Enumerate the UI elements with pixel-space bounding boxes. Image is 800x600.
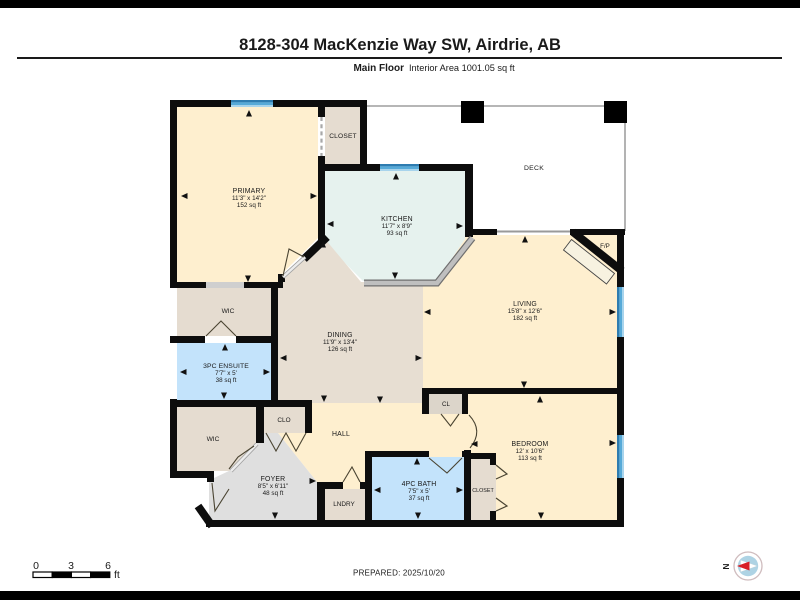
svg-text:Main Floor: Main Floor (353, 63, 404, 74)
svg-text:8128-304 MacKenzie Way SW, Air: 8128-304 MacKenzie Way SW, Airdrie, AB (239, 36, 561, 54)
svg-text:FOYER: FOYER (261, 476, 286, 483)
svg-text:CLO: CLO (277, 417, 290, 424)
svg-text:37 sq ft: 37 sq ft (409, 495, 430, 502)
svg-text:15'8" x 12'6": 15'8" x 12'6" (508, 308, 543, 315)
svg-text:Interior Area 1001.05 sq ft: Interior Area 1001.05 sq ft (409, 63, 515, 73)
svg-text:152 sq ft: 152 sq ft (237, 202, 261, 209)
svg-text:WIC: WIC (207, 436, 220, 443)
svg-text:4PC BATH: 4PC BATH (402, 481, 437, 488)
svg-text:48 sq ft: 48 sq ft (263, 490, 284, 497)
svg-text:LIVING: LIVING (513, 301, 537, 308)
svg-text:HALL: HALL (332, 431, 350, 438)
svg-text:0: 0 (33, 560, 39, 572)
svg-text:BEDROOM: BEDROOM (511, 441, 548, 448)
svg-text:11'9" x 13'4": 11'9" x 13'4" (323, 339, 357, 346)
svg-text:DINING: DINING (327, 332, 352, 339)
svg-text:PRIMARY: PRIMARY (233, 188, 266, 195)
svg-text:WIC: WIC (222, 308, 235, 315)
svg-text:CLOSET: CLOSET (329, 133, 357, 140)
svg-text:CL: CL (442, 401, 450, 408)
svg-text:12' x 10'6": 12' x 10'6" (516, 448, 545, 455)
svg-text:F/P: F/P (600, 243, 610, 250)
svg-text:N: N (721, 563, 731, 569)
svg-text:ft: ft (114, 569, 120, 581)
svg-text:7'7" x 5': 7'7" x 5' (215, 370, 237, 377)
svg-text:93 sq ft: 93 sq ft (387, 230, 408, 237)
svg-text:113 sq ft: 113 sq ft (518, 455, 542, 462)
svg-text:PREPARED: 2025/10/20: PREPARED: 2025/10/20 (353, 569, 445, 578)
svg-text:3: 3 (68, 560, 74, 572)
svg-text:3PC ENSUITE: 3PC ENSUITE (203, 363, 249, 370)
svg-text:11'7" x 8'9": 11'7" x 8'9" (382, 223, 413, 230)
svg-text:KITCHEN: KITCHEN (381, 216, 413, 223)
svg-text:DECK: DECK (524, 165, 544, 172)
svg-text:6: 6 (105, 560, 111, 572)
svg-text:8'5" x 6'11": 8'5" x 6'11" (258, 483, 289, 490)
svg-text:182 sq ft: 182 sq ft (513, 315, 537, 322)
svg-text:38 sq ft: 38 sq ft (216, 377, 237, 384)
svg-text:LNDRY: LNDRY (333, 501, 355, 508)
svg-text:7'5" x 5': 7'5" x 5' (408, 488, 430, 495)
svg-text:CLOSET: CLOSET (472, 488, 494, 494)
svg-text:11'3" x 14'2": 11'3" x 14'2" (232, 195, 266, 202)
svg-text:126 sq ft: 126 sq ft (328, 346, 352, 353)
